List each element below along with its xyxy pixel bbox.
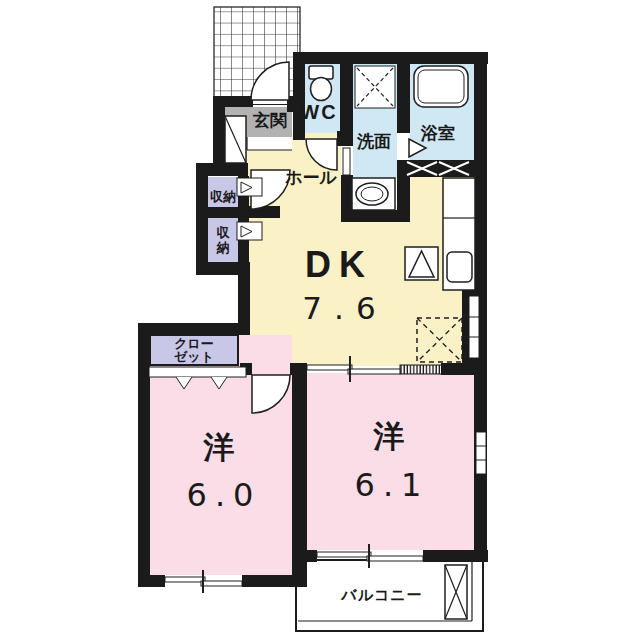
toilet-icon [309, 66, 333, 101]
washing-machine-pan-icon [355, 66, 395, 108]
kitchen-sink-icon [447, 252, 472, 282]
label-west-b: 洋 [373, 419, 405, 454]
wall [340, 52, 353, 140]
bathtub-icon [414, 66, 468, 107]
floorplan-svg: 玄関 WC 洗面 浴室 ホール 収納 収 納 DK 7.6 クロー ゼット 洋 … [0, 0, 640, 640]
bath-edge-hatch [404, 160, 474, 177]
label-west-a: 洋 [203, 430, 235, 465]
label-dk-size: 7.6 [302, 290, 387, 326]
dk-side-window [469, 296, 479, 358]
label-storage-a: 収納 [210, 189, 236, 204]
shoe-cabinet-icon [225, 116, 246, 163]
label-closet-2: ゼット [174, 349, 214, 364]
label-west-b-size: 6.1 [355, 466, 430, 504]
label-storage-b-2: 納 [216, 240, 230, 255]
genkan-step [247, 137, 292, 150]
west-b-side-window [476, 432, 486, 474]
wall [423, 550, 488, 562]
wall [341, 175, 353, 210]
wall [196, 163, 208, 275]
label-wc: WC [300, 101, 337, 123]
label-balcony: バルコニー [340, 586, 422, 603]
wall [397, 52, 410, 133]
wall [441, 363, 476, 375]
wall [138, 575, 165, 587]
wall [290, 363, 307, 375]
label-storage-b-1: 収 [217, 225, 231, 240]
dk-counter-edge-hatch [400, 365, 443, 374]
label-hall: ホール [285, 168, 337, 187]
label-west-a-size: 6.0 [187, 476, 262, 514]
label-senmen: 洗面 [356, 132, 391, 151]
senmen-sliding-door [343, 148, 350, 175]
wall [138, 323, 150, 587]
wall [292, 550, 317, 562]
wall [208, 207, 238, 218]
wash-basin-icon [352, 178, 395, 210]
kitchen-counter-icon [443, 178, 475, 290]
west-b-floor [307, 373, 474, 550]
storage-a-door [237, 178, 262, 196]
stove-icon [405, 247, 438, 280]
wall [213, 96, 225, 168]
label-bath: 浴室 [420, 124, 455, 143]
label-genkan: 玄関 [252, 111, 287, 130]
label-dk: DK [305, 244, 373, 285]
wall [293, 52, 488, 64]
floorplan-canvas: 玄関 WC 洗面 浴室 ホール 収納 収 納 DK 7.6 クロー ゼット 洋 … [0, 0, 640, 640]
wall [202, 163, 248, 176]
wall [293, 52, 305, 140]
storage-b-door [237, 222, 262, 240]
wall [337, 131, 353, 146]
wall [138, 323, 250, 335]
